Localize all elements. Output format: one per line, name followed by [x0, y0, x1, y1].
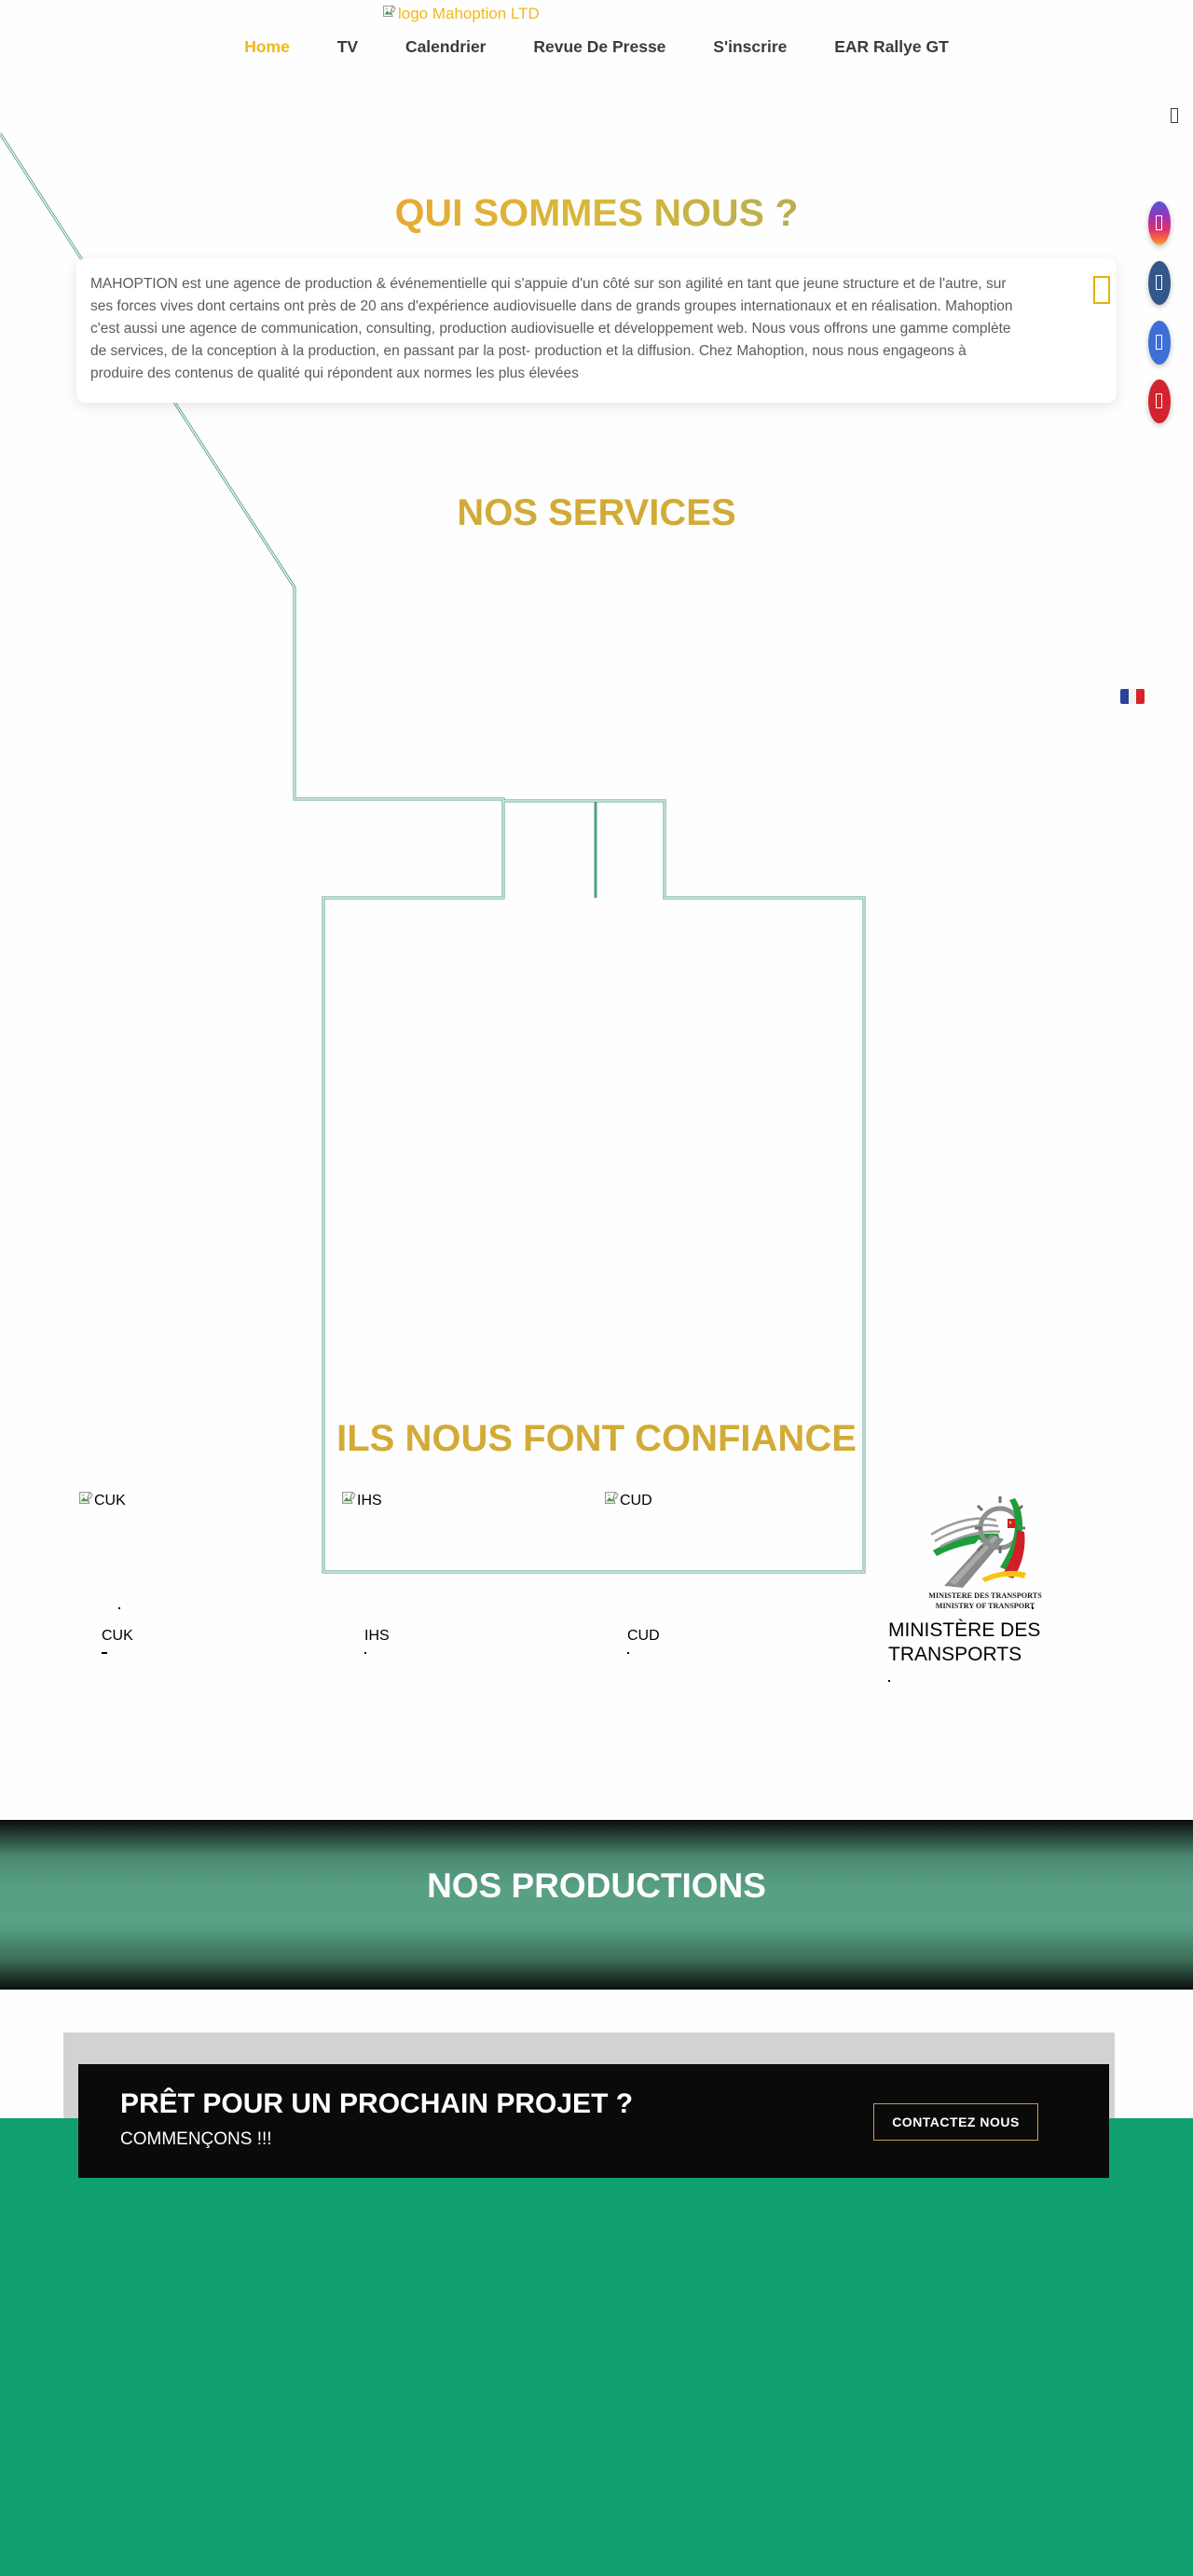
svg-text:MINISTERE DES TRANSPORTS: MINISTERE DES TRANSPORTS [928, 1591, 1042, 1600]
